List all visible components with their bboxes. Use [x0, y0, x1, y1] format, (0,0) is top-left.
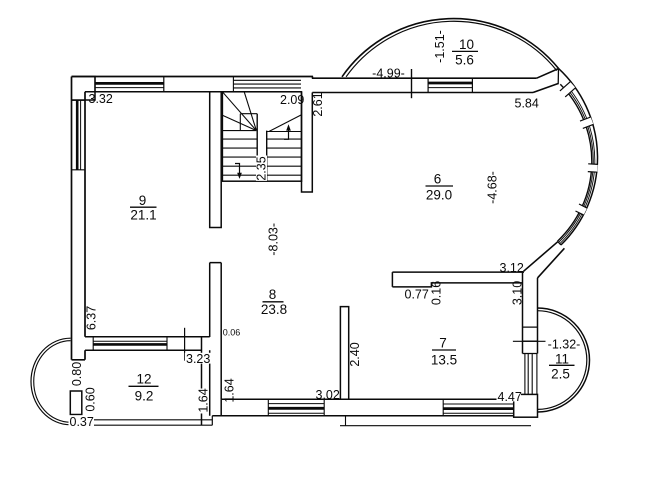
svg-text:11: 11: [555, 352, 569, 367]
svg-text:3.02: 3.02: [316, 388, 340, 402]
svg-text:7: 7: [439, 336, 447, 351]
svg-text:21.1: 21.1: [130, 208, 156, 223]
svg-text:23.8: 23.8: [261, 302, 287, 317]
svg-text:5.84: 5.84: [515, 97, 539, 111]
svg-text:3.23: 3.23: [186, 352, 210, 366]
svg-text:0.37: 0.37: [70, 415, 94, 429]
svg-text:3.32: 3.32: [89, 92, 113, 106]
svg-text:5.6: 5.6: [455, 53, 474, 68]
svg-text:-1.32-: -1.32-: [548, 337, 581, 351]
svg-text:9: 9: [139, 193, 147, 208]
svg-text:2.40: 2.40: [348, 342, 362, 366]
svg-text:1.64: 1.64: [197, 388, 211, 412]
svg-text:3.10: 3.10: [511, 281, 525, 305]
svg-text:3.12: 3.12: [500, 261, 524, 275]
svg-text:10: 10: [459, 37, 474, 52]
svg-text:0.60: 0.60: [84, 387, 98, 411]
svg-text:0.16: 0.16: [430, 281, 444, 305]
svg-text:4.47: 4.47: [498, 390, 522, 404]
svg-text:0.06: 0.06: [223, 328, 241, 338]
svg-text:-4.68-: -4.68-: [486, 171, 500, 204]
svg-text:13.5: 13.5: [431, 353, 457, 368]
svg-text:6.37: 6.37: [85, 306, 99, 330]
svg-text:2.09: 2.09: [280, 93, 304, 107]
svg-text:8: 8: [269, 287, 277, 302]
svg-text:2.5: 2.5: [551, 367, 570, 382]
svg-text:-4.99-: -4.99-: [372, 67, 405, 81]
svg-text:29.0: 29.0: [426, 188, 452, 203]
svg-text:9.2: 9.2: [135, 389, 154, 404]
svg-text:6: 6: [434, 172, 442, 187]
svg-text:-1.51-: -1.51-: [433, 30, 447, 63]
svg-text:0.80: 0.80: [70, 362, 84, 386]
svg-text:2.35: 2.35: [255, 156, 269, 180]
svg-text:12: 12: [136, 372, 151, 387]
svg-text:1.64: 1.64: [223, 378, 237, 402]
svg-text:0.77: 0.77: [405, 288, 429, 302]
svg-text:2.61: 2.61: [311, 92, 325, 116]
svg-text:-8.03-: -8.03-: [267, 223, 281, 256]
